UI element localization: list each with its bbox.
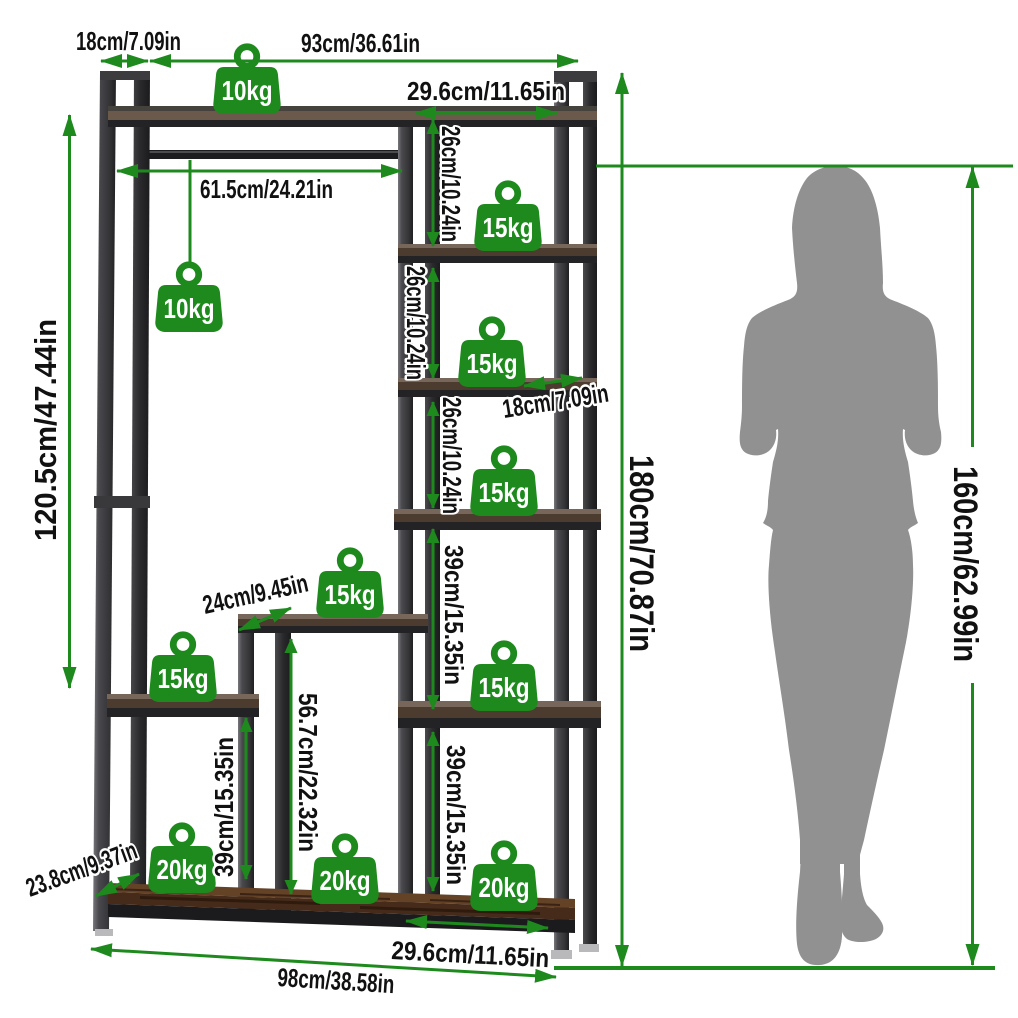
svg-text:20kg: 20kg <box>479 872 530 903</box>
svg-text:160cm/62.99in: 160cm/62.99in <box>946 466 984 662</box>
svg-text:20kg: 20kg <box>157 854 208 885</box>
svg-text:120.5cm/47.44in: 120.5cm/47.44in <box>28 319 63 541</box>
svg-text:15kg: 15kg <box>158 663 209 694</box>
svg-text:10kg: 10kg <box>164 293 215 324</box>
svg-text:29.6cm/11.65in: 29.6cm/11.65in <box>407 76 565 106</box>
svg-text:20kg: 20kg <box>320 865 371 896</box>
svg-text:15kg: 15kg <box>325 579 376 610</box>
svg-text:61.5cm/24.21in: 61.5cm/24.21in <box>200 174 333 204</box>
svg-text:56.7cm/22.32in: 56.7cm/22.32in <box>293 693 323 852</box>
svg-text:26cm/10.24in: 26cm/10.24in <box>401 266 431 380</box>
svg-text:15kg: 15kg <box>479 672 530 703</box>
svg-text:26cm/10.24in: 26cm/10.24in <box>436 126 466 242</box>
svg-text:39cm/15.35in: 39cm/15.35in <box>439 545 469 685</box>
svg-text:39cm/15.35in: 39cm/15.35in <box>209 737 239 877</box>
svg-text:26cm/10.24in: 26cm/10.24in <box>437 397 467 514</box>
svg-text:15kg: 15kg <box>479 477 530 508</box>
svg-text:18cm/7.09in: 18cm/7.09in <box>76 26 181 56</box>
svg-text:93cm/36.61in: 93cm/36.61in <box>301 28 420 58</box>
svg-text:180cm/70.87in: 180cm/70.87in <box>622 455 660 652</box>
svg-text:15kg: 15kg <box>467 348 518 379</box>
svg-text:10kg: 10kg <box>222 75 273 106</box>
svg-text:39cm/15.35in: 39cm/15.35in <box>441 745 471 885</box>
svg-text:15kg: 15kg <box>483 212 534 243</box>
